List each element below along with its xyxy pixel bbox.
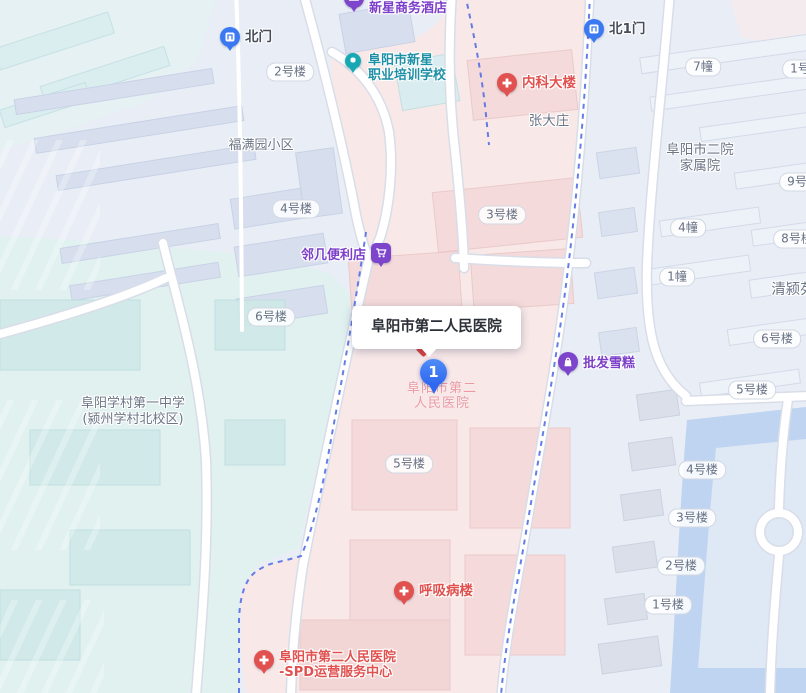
poi-training-school[interactable]: 阜阳市新星 职业培训学校	[345, 53, 446, 83]
poi-north-gate[interactable]: 北门	[220, 27, 272, 47]
building-label: 2号楼	[266, 63, 314, 82]
poi-label: 邻几便利店	[301, 248, 366, 263]
poi-label: -SPD运营服务中心	[279, 665, 396, 680]
hospital-cross-icon	[254, 650, 274, 670]
gate-icon	[220, 27, 240, 47]
gate-icon	[584, 19, 604, 39]
area-label-line: 人民医院	[407, 396, 477, 411]
area-label-line: 家属院	[666, 158, 734, 174]
area-label-line: 阜阳学村第一中学	[81, 396, 185, 412]
poi-convenience-store[interactable]: 邻几便利店	[301, 243, 391, 263]
building-label: 1幢	[659, 268, 695, 287]
building-label: 3号楼	[668, 509, 716, 528]
building-label: 2号楼	[657, 557, 705, 576]
building-label: 5号楼	[385, 455, 433, 474]
area-label-line: 阜阳市二院	[666, 142, 734, 158]
building-label: 5号楼	[728, 381, 776, 400]
dot-pin-icon	[345, 53, 361, 69]
area-label-zhangdazhuang: 张大庄	[529, 113, 570, 129]
building-label: 4号楼	[272, 200, 320, 219]
poi-label: 内科大楼	[522, 76, 576, 91]
building-label: 4幢	[670, 219, 706, 238]
info-window-title: 阜阳市第二人民医院	[352, 306, 521, 349]
poi-label: 北门	[245, 30, 272, 45]
building-label: 9号楼	[779, 173, 806, 192]
building-label: 8号楼	[773, 230, 806, 249]
poi-label: 职业培训学校	[368, 68, 446, 83]
area-label-eryuan: 阜阳市二院 家属院	[666, 142, 734, 174]
poi-north-gate-1[interactable]: 北1门	[584, 19, 645, 39]
shopping-cart-icon	[371, 243, 391, 263]
building-label: 1号楼	[644, 596, 692, 615]
poi-label: 批发雪糕	[583, 356, 635, 371]
poi-label: 呼吸病楼	[419, 584, 473, 599]
area-label-hospital: 阜阳市第二 人民医院	[407, 381, 477, 411]
hospital-cross-icon	[394, 581, 414, 601]
building-label: 7幢	[685, 58, 721, 77]
poi-label: 北1门	[609, 22, 645, 37]
shopping-bag-icon	[558, 352, 578, 372]
result-marker-1[interactable]: 1	[420, 359, 447, 386]
hospital-cross-icon	[497, 73, 517, 93]
building-label: 6号楼	[753, 330, 801, 349]
area-label-qingyingyuan: 清颍苑	[771, 282, 806, 298]
poi-spd-center[interactable]: 阜阳市第二人民医院 -SPD运营服务中心	[254, 650, 396, 680]
poi-label: 阜阳市第二人民医院	[279, 650, 396, 665]
building-label: 3号楼	[478, 206, 526, 225]
building-label: 1号楼	[782, 60, 806, 79]
area-label-fumanyuan: 福满园小区	[228, 138, 293, 154]
poi-label: 阜阳市新星	[368, 53, 446, 68]
building-label: 4号楼	[678, 461, 726, 480]
poi-internal-medicine[interactable]: 内科大楼	[497, 73, 576, 93]
bed-icon	[344, 0, 364, 8]
info-window[interactable]: 阜阳市第二人民医院	[352, 306, 521, 349]
map-canvas[interactable]: 2号楼 4号楼 6号楼 3号楼 7幢 1号楼 9号楼 4幢 8号楼 1幢 6号楼…	[0, 0, 806, 693]
poi-label: 新星商务酒店	[369, 1, 447, 16]
poi-hotel[interactable]: 新星商务酒店	[344, 0, 447, 16]
area-label-line: (颍州学村北校区)	[81, 412, 185, 428]
area-label-line: 阜阳市第二	[407, 381, 477, 396]
building-label: 6号楼	[247, 308, 295, 327]
poi-ice-cream[interactable]: 批发雪糕	[558, 352, 635, 372]
poi-respiratory[interactable]: 呼吸病楼	[394, 581, 473, 601]
area-label-school: 阜阳学村第一中学 (颍州学村北校区)	[81, 396, 185, 428]
